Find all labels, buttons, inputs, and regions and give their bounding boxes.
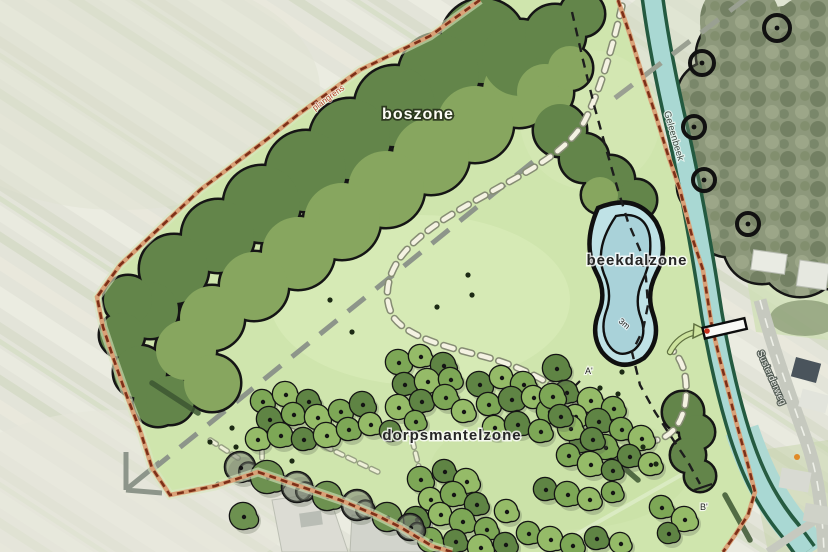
meadow-dot [434, 304, 439, 309]
tree-canopy-fill [465, 477, 479, 491]
tree-centre-dot [522, 383, 526, 387]
tree-centre-dot [479, 546, 483, 550]
tree-centre-dot [302, 438, 306, 442]
tree-centre-dot [439, 513, 443, 517]
tree-centre-dot [414, 420, 418, 424]
tree-centre-dot [551, 395, 555, 399]
tree-centre-dot [284, 393, 288, 397]
map-canvas: boszone beekdalzone dorpsmantelzone plan… [0, 0, 828, 552]
tree-centre-dot [620, 428, 624, 432]
tree-centre-dot [316, 416, 320, 420]
tree-centre-dot [403, 383, 407, 387]
photo-tree-dot [692, 125, 697, 130]
tree-centre-dot [595, 537, 599, 541]
canopy-blob-fill [184, 355, 240, 411]
tree-centre-dot [461, 520, 465, 524]
tree-centre-dot [419, 478, 423, 482]
tree-centre-dot [443, 470, 447, 474]
tree-centre-dot [429, 498, 433, 502]
meadow-dot [327, 297, 332, 302]
tree-centre-dot [527, 532, 531, 536]
tree-centre-dot [475, 503, 479, 507]
tree-centre-dot [325, 434, 329, 438]
tree-centre-dot [419, 355, 423, 359]
meadow-dot [289, 458, 294, 463]
tree-centre-dot [649, 463, 653, 467]
tree-centre-dot [628, 455, 632, 459]
meadow-dot [229, 425, 234, 430]
building [796, 260, 828, 290]
orange-marker-dot [794, 454, 800, 460]
tree-canopy-fill [292, 411, 305, 424]
tree-centre-dot [611, 491, 615, 495]
tree-centre-dot [279, 434, 283, 438]
tree-canopy-fill [454, 538, 467, 551]
tree-canopy-fill [612, 405, 625, 418]
tree-centre-dot [452, 493, 456, 497]
tree-centre-dot [426, 380, 430, 384]
tree-canopy-fill [588, 496, 601, 509]
bridge-red-dot [704, 328, 710, 334]
tree-centre-dot [588, 498, 592, 502]
tree-centre-dot [555, 367, 559, 371]
tree-canopy-fill [505, 508, 518, 521]
tree-centre-dot [339, 410, 343, 414]
tree-centre-dot [420, 400, 424, 404]
tree-canopy-fill [595, 535, 608, 548]
meadow-dot [615, 391, 620, 396]
tree-canopy-fill [555, 364, 571, 380]
tree-canopy-fill [242, 512, 258, 528]
tree-centre-dot [485, 528, 489, 532]
tree-centre-dot [465, 480, 469, 484]
tree-centre-dot [444, 396, 448, 400]
photo-tree-dot [702, 178, 707, 183]
tree-centre-dot [369, 423, 373, 427]
tree-centre-dot [539, 430, 543, 434]
label-section-b: B' [700, 502, 708, 512]
tree-centre-dot [532, 396, 536, 400]
meadow-dot [653, 461, 658, 466]
tree-centre-dot [454, 540, 458, 544]
tree-centre-dot [619, 542, 623, 546]
building [751, 250, 787, 275]
meadow-dot [640, 444, 645, 449]
label-boszone: boszone [382, 106, 454, 123]
tree-centre-dot [567, 454, 571, 458]
meadow-dot [469, 292, 474, 297]
tree-centre-dot [307, 400, 311, 404]
tree-canopy-fill [539, 428, 552, 441]
meadow-dot [597, 385, 602, 390]
tree-centre-dot [589, 399, 593, 403]
meadow-dot [619, 369, 624, 374]
tree-centre-dot [397, 406, 401, 410]
meadow-dot [349, 329, 354, 334]
tree-canopy-fill [559, 413, 572, 426]
photo-tree-dot [775, 26, 780, 31]
tree-centre-dot [683, 518, 687, 522]
tree-centre-dot [667, 532, 671, 536]
label-dorpsmantelzone: dorpsmantelzone [382, 427, 521, 444]
label-section-a: A' [585, 366, 593, 376]
tree-centre-dot [611, 469, 615, 473]
tree-centre-dot [591, 438, 595, 442]
tree-centre-dot [660, 506, 664, 510]
photo-tree-dot [746, 222, 751, 227]
canopy-blob-fill [548, 46, 592, 90]
tree-canopy-fill [475, 501, 488, 514]
tree-centre-dot [566, 493, 570, 497]
beekdal-pond [589, 202, 663, 364]
tree-canopy-fill [591, 436, 604, 449]
tree-centre-dot [462, 410, 466, 414]
landscape-plan-map: boszone beekdalzone dorpsmantelzone plan… [0, 0, 828, 552]
tree-centre-dot [239, 466, 243, 470]
tree-centre-dot [268, 418, 272, 422]
tree-centre-dot [549, 538, 553, 542]
tree-centre-dot [504, 543, 508, 547]
tree-canopy-fill [683, 515, 697, 529]
tree-centre-dot [640, 437, 644, 441]
meadow-dot [233, 444, 238, 449]
tree-centre-dot [544, 488, 548, 492]
tree-centre-dot [571, 544, 575, 548]
tree-canopy-fill [461, 517, 475, 531]
tree-centre-dot [292, 413, 296, 417]
tree-centre-dot [597, 420, 601, 424]
tree-centre-dot [612, 407, 616, 411]
tree-centre-dot [256, 438, 260, 442]
tree-centre-dot [397, 361, 401, 365]
tree-centre-dot [449, 378, 453, 382]
tree-centre-dot [500, 376, 504, 380]
tree-centre-dot [478, 383, 482, 387]
tree-centre-dot [242, 515, 246, 519]
meadow-dot [465, 272, 470, 277]
tree-centre-dot [589, 463, 593, 467]
label-beekdalzone: beekdalzone [586, 252, 687, 269]
tree-canopy-fill [462, 408, 475, 421]
tree-centre-dot [347, 428, 351, 432]
tree-centre-dot [361, 403, 365, 407]
tree-centre-dot [505, 510, 509, 514]
tree-centre-dot [261, 400, 265, 404]
photo-tree-dot [700, 61, 705, 66]
tree-centre-dot [510, 398, 514, 402]
tree-canopy-fill [420, 398, 433, 411]
tree-centre-dot [559, 415, 563, 419]
tree-centre-dot [487, 403, 491, 407]
meadow-dot [207, 439, 212, 444]
